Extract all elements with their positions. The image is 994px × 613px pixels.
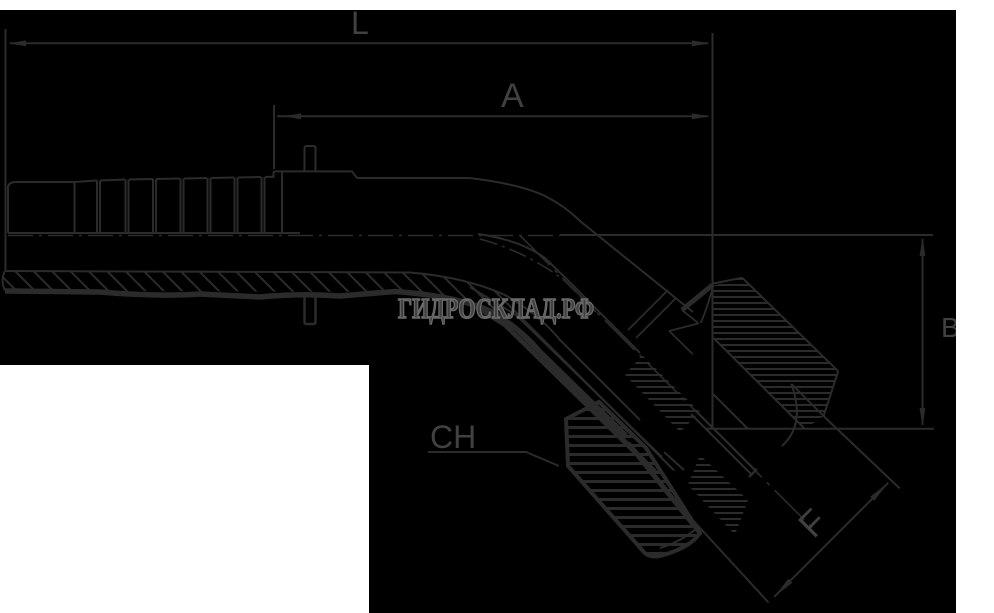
svg-text:L: L — [351, 5, 369, 41]
svg-text:ГИДРОСКЛАД.РФ: ГИДРОСКЛАД.РФ — [398, 294, 594, 325]
svg-text:CH: CH — [430, 419, 476, 455]
svg-text:A: A — [501, 77, 524, 115]
